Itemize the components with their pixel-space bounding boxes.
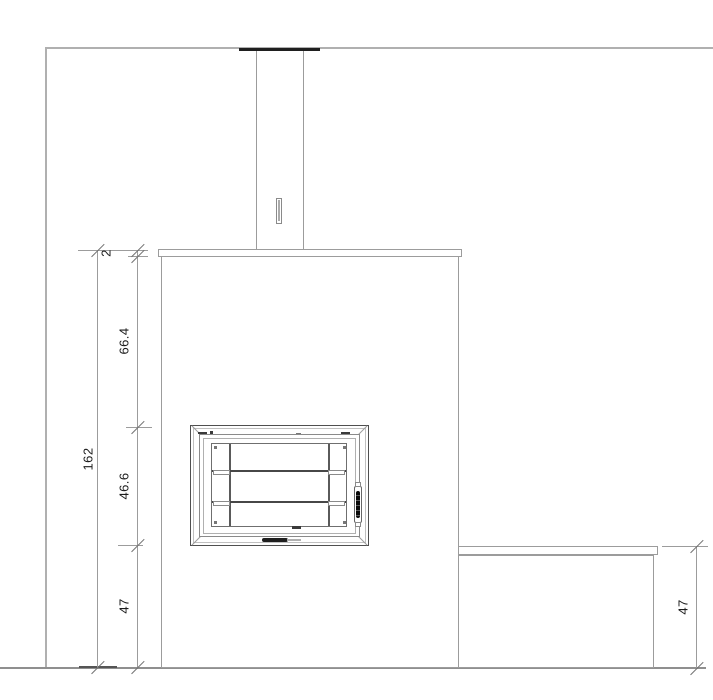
bar-bracket-lower-left xyxy=(213,501,230,507)
door-hinge-mark-top-left xyxy=(198,432,207,434)
dim-line-chain xyxy=(137,250,138,668)
glass-retainer-right xyxy=(328,444,330,526)
glass-screw-bottom-left xyxy=(214,521,217,524)
dim-label-bench-height: 47 xyxy=(677,599,690,614)
bar-bracket-lower-right xyxy=(328,501,345,507)
dim-label-cap-thickness: 2 xyxy=(100,249,113,257)
dim-line-bench xyxy=(696,546,697,668)
ceiling-penetration-band xyxy=(239,48,320,51)
bench-top-slab xyxy=(458,546,658,555)
dim-line-total-height xyxy=(97,250,98,668)
door-handle-grip xyxy=(356,491,361,518)
dim-label-base-section: 47 xyxy=(118,598,131,613)
flue-damper-slot-inner-line xyxy=(278,200,280,221)
dim-label-door-height: 46.6 xyxy=(118,473,131,500)
door-handle-cap-top xyxy=(355,482,361,487)
glass-bar-upper xyxy=(212,470,346,472)
top-cap-slab xyxy=(158,249,462,257)
door-bottom-latch xyxy=(262,538,288,543)
glass-screw-bottom-right xyxy=(343,521,346,524)
door-hinge-mark-top-right xyxy=(341,432,350,434)
fireplace-elevation-drawing: 2 66.4 46.6 47 162 47 xyxy=(0,0,713,700)
glass-retainer-left xyxy=(229,444,231,526)
dim-label-total-height: 162 xyxy=(82,448,95,471)
bench-body xyxy=(458,555,654,668)
door-hinge-dot-top-left xyxy=(210,431,214,434)
dim-label-upper-section: 66.4 xyxy=(118,328,131,355)
left-wall-line xyxy=(45,47,47,668)
ceiling-line xyxy=(45,47,713,49)
glass-bar-lower xyxy=(212,501,346,503)
door-handle-cap-bottom xyxy=(355,522,361,527)
bar-bracket-upper-right xyxy=(328,470,345,476)
glass-screw-top-right xyxy=(343,446,346,449)
door-bottom-latch-track xyxy=(287,539,301,541)
bar-bracket-upper-left xyxy=(213,470,230,476)
glass-frame xyxy=(211,443,347,527)
ext-line-bench-top xyxy=(662,546,708,547)
door-mark-bottom-center xyxy=(292,526,301,529)
glass-screw-top-left xyxy=(214,446,217,449)
door-mark-top-center xyxy=(296,433,301,435)
